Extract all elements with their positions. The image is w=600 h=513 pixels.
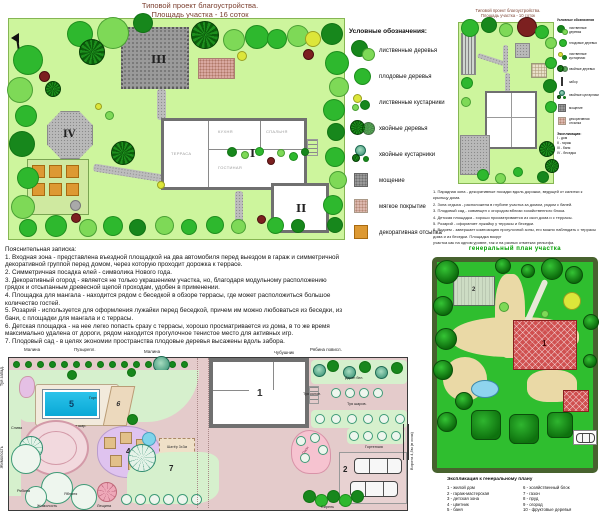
tree-icon	[97, 482, 117, 502]
legend-item-label: лиственные кустарники	[569, 53, 599, 60]
plant-label: Малина	[24, 348, 40, 353]
tree-icon	[67, 370, 77, 380]
mini-gazebo	[515, 43, 530, 58]
planting-bed: Дерен бел.	[311, 360, 407, 384]
car-icon	[576, 433, 595, 443]
legend-item-label: хвойные кустарники	[379, 152, 435, 159]
tree-icon	[565, 266, 583, 284]
tree-icon	[583, 314, 599, 330]
conifer-trees-icon	[557, 64, 569, 75]
legend-item-label: мощение	[569, 107, 583, 111]
note-item: 2. Симметричная посадка елей - символика…	[5, 269, 346, 277]
deciduous-trees-icon	[349, 39, 379, 63]
tree-icon	[327, 123, 345, 141]
tree-icon	[7, 77, 33, 103]
tree-icon	[517, 17, 537, 37]
hedge-shrub-icon	[133, 361, 140, 368]
area-number-2: 2	[343, 465, 347, 474]
shrub-icon	[163, 494, 174, 505]
plant-label: Жимолость	[37, 504, 57, 508]
tree-icon	[583, 354, 597, 368]
tree-icon	[435, 260, 459, 284]
plant-label: Туя колон.	[303, 392, 321, 396]
small-building-roof	[563, 390, 589, 412]
tree-icon	[71, 484, 97, 510]
mini-plan-title-line2: Площадь участка - 10 соток	[462, 13, 554, 18]
general-plan-explication: Экспликация к генеральному плану 1 - жил…	[447, 477, 599, 482]
tree-icon	[461, 97, 471, 107]
general-plan-canvas: 2 1	[432, 257, 598, 473]
tree-icon	[323, 99, 345, 121]
legend-item: хвойные кустарники	[557, 89, 599, 102]
legend-item: лиственные кустарники	[349, 90, 455, 116]
area-number-IV: IV	[63, 129, 75, 140]
tree-icon	[495, 258, 511, 274]
tree-icon	[327, 360, 339, 372]
building-number: 2	[472, 287, 475, 293]
tree-icon	[303, 49, 314, 60]
flower-bed	[19, 376, 35, 398]
tree-icon	[375, 366, 388, 379]
tree-icon	[391, 362, 403, 374]
tree-icon	[499, 23, 513, 37]
tree-icon	[71, 213, 81, 223]
legend-item: лиственные деревья	[557, 24, 599, 37]
tree-icon	[313, 364, 326, 377]
path	[93, 163, 165, 182]
shrub-icon	[315, 414, 325, 424]
conifer-icon	[79, 39, 105, 65]
note-item: 4. Площадка для мангала - находится рядо…	[5, 292, 346, 307]
conifer-icon	[45, 81, 61, 97]
tree-icon	[537, 171, 549, 183]
mini-legend-title: Условные обозначения	[557, 18, 599, 22]
shrub-icon	[345, 388, 355, 398]
mini-driveway	[461, 33, 476, 75]
shrub-icon	[395, 414, 405, 424]
conifer-icon	[128, 444, 156, 472]
tree-icon	[435, 328, 457, 350]
legend-item: лиственные кустарники	[557, 50, 599, 63]
outbuilding: 2	[453, 276, 495, 306]
gate-label: Ворота 4,5м (в осях)	[410, 432, 414, 470]
tree-icon	[181, 219, 197, 235]
shrub-icon	[391, 431, 401, 441]
legend-item-label: мягкое покрытие	[379, 204, 426, 211]
hydrangea-bed	[347, 428, 405, 444]
legend-item-label: декоративная отсыпка	[569, 118, 599, 125]
conifer-icon	[539, 141, 555, 157]
tree-icon	[11, 444, 41, 474]
shrub-icon	[499, 302, 509, 312]
main-plan-canvas: III IV ТЕРРАСА КУХНЯ СПАЛЬН	[8, 18, 345, 240]
tree-icon	[541, 258, 563, 280]
main-plan-title-line1: Типовой проект благоустройства.	[60, 1, 340, 10]
tree-icon	[9, 131, 35, 157]
plant-label: Лещина	[97, 504, 111, 508]
garden-bed	[66, 165, 79, 178]
shrub-icon	[95, 103, 102, 110]
shrub-icon	[347, 414, 357, 424]
shrub-icon	[331, 388, 341, 398]
tree-icon	[127, 368, 136, 377]
pond	[471, 380, 499, 398]
landscape-plan-sheet: Типовой проект благоустройства. Площадь …	[0, 0, 600, 513]
pool: 5	[43, 390, 99, 418]
tree-icon	[245, 25, 269, 49]
tree-icon	[433, 360, 453, 380]
legend-item-label: лиственные кустарники	[379, 100, 445, 107]
explication-column-right: 6 - хозяйственный блок 7 - газон 8 - пру…	[523, 485, 599, 513]
legend-item: хвойные деревья	[349, 116, 455, 142]
tree-icon	[13, 45, 43, 75]
hedge-shrub-icon	[37, 361, 44, 368]
main-plan-title: Типовой проект благоустройства. Площадь …	[60, 1, 340, 20]
explanatory-notes: Пояснительная записка: 1. Входная зона -…	[5, 246, 346, 346]
legend-item-label: хвойные деревья	[569, 68, 595, 72]
shrub-icon	[301, 148, 309, 156]
tree-icon	[45, 215, 67, 237]
stepping-stone	[104, 437, 116, 449]
tree-icon	[543, 79, 557, 93]
tree-icon	[291, 219, 305, 233]
explication-line: 5 - баня	[447, 507, 519, 513]
hedge-shrub-icon	[13, 361, 20, 368]
peony-bed: Пион	[291, 430, 331, 474]
tree-icon	[231, 219, 246, 234]
mini-legend: Условные обозначения лиственные деревья …	[557, 18, 599, 156]
tree-icon	[455, 392, 473, 410]
shrub-icon	[267, 157, 275, 165]
plant-label: Дерен бел.	[345, 377, 363, 381]
mini-plan-canvas	[458, 22, 554, 184]
house-wall	[213, 390, 249, 391]
tree-icon	[223, 29, 245, 51]
legend-item: декоративная отсыпка	[557, 115, 599, 128]
conifer-icon	[111, 141, 135, 165]
area-number-III: III	[151, 53, 166, 66]
house-wall	[273, 362, 274, 390]
shrub-icon	[277, 149, 285, 157]
legend-item-label: плодовые деревья	[379, 74, 431, 81]
shrub-icon	[296, 436, 306, 446]
north-arrow-flag	[11, 33, 19, 43]
shrub-icon	[121, 494, 132, 505]
path	[157, 89, 166, 120]
tree-icon	[155, 216, 174, 235]
paved-area: III	[121, 27, 189, 89]
tree-icon	[513, 167, 523, 177]
hedge-shrub-icon	[351, 490, 364, 503]
general-plan-title: генеральный план участка	[430, 246, 600, 252]
hedge-shrub-icon	[85, 361, 92, 368]
tree-icon	[329, 77, 349, 97]
legend-title: Условные обозначения:	[349, 28, 455, 35]
plant-label: Горт.	[89, 396, 97, 400]
shrub-icon	[289, 152, 298, 161]
tree-icon	[39, 71, 50, 82]
tree-icon	[329, 171, 347, 189]
tree-icon	[257, 215, 266, 224]
stepping-stone	[110, 455, 122, 467]
explication-title: Экспликация к генеральному плану	[447, 477, 599, 482]
shrub-icon	[227, 147, 237, 157]
hedge-icon	[547, 412, 573, 438]
soft-surface-icon	[349, 195, 379, 219]
house-wall	[208, 121, 209, 187]
legend-item: лиственные деревья	[349, 38, 455, 64]
shrub-icon	[373, 388, 383, 398]
garden-bed	[49, 165, 62, 178]
plant-label: Сирень	[321, 505, 334, 509]
note-item: 7. Плодовый сад - в целях экономии прост…	[5, 338, 346, 346]
note-item: 1. Входная зона - представлена въездной …	[5, 254, 346, 269]
tree-icon	[103, 216, 123, 236]
area-number-7: 7	[169, 464, 173, 473]
kitchen-garden	[27, 159, 89, 215]
plant-label: Туя запад.	[0, 366, 4, 386]
fence-icon	[557, 77, 569, 88]
notes-title: Пояснительная записка:	[5, 246, 346, 254]
tree-icon	[127, 414, 138, 425]
main-house-roof: 1	[513, 320, 577, 370]
tree-icon	[267, 217, 284, 234]
plant-label: Пузырепл.	[74, 348, 96, 353]
tree-icon	[11, 195, 35, 219]
hedge-shrub-icon	[97, 361, 104, 368]
tree-icon	[327, 217, 343, 233]
hedge-shrub-icon	[25, 361, 32, 368]
note-item: 6. Детская площадка - на нее легко попас…	[5, 323, 346, 338]
room-label-terrace: ТЕРРАСА	[171, 151, 191, 156]
note-item: 5. Розарий - используется для оформления…	[5, 307, 346, 322]
hedge-shrub-icon	[49, 361, 56, 368]
legend-item: плодовые деревья	[349, 64, 455, 90]
tree-icon	[133, 13, 153, 33]
tree-icon	[545, 37, 557, 49]
conifer-shrubs-icon	[349, 143, 379, 167]
paving-icon	[349, 169, 379, 193]
legend-item: мощение	[557, 102, 599, 115]
hedge-shrub-icon	[121, 361, 128, 368]
hedge-icon	[471, 410, 501, 440]
tree-icon	[267, 29, 287, 49]
tree-icon	[19, 219, 37, 237]
soft-surface-patch	[198, 58, 235, 79]
mini-plan-notes: 1. Парадная зона - декоративные посадки …	[433, 189, 598, 247]
legend-item-label: хвойные кустарники	[569, 94, 599, 98]
deciduous-shrubs-icon	[557, 51, 569, 62]
plant-label: Чубушник	[274, 351, 294, 356]
tree-icon	[129, 219, 146, 236]
legend-item: хвойные деревья	[557, 63, 599, 76]
legend-item-label: плодовые деревья	[569, 42, 597, 46]
fruit-trees-icon	[557, 38, 569, 49]
tree-icon	[481, 17, 497, 33]
legend-item-label: мощение	[379, 178, 405, 185]
house-wall	[487, 117, 535, 118]
tree-icon	[461, 19, 479, 37]
plant-label: Рябина	[17, 489, 30, 493]
area-number-6: 6	[116, 401, 121, 408]
deciduous-trees-icon	[557, 25, 569, 36]
plant-label: Гортензия	[365, 445, 383, 449]
house: 1	[209, 358, 309, 428]
tree-icon	[563, 292, 581, 310]
tree-icon	[305, 31, 321, 47]
room-label-living: ГОСТИНАЯ	[218, 165, 242, 170]
tree-icon	[15, 105, 37, 127]
legend-item-label: лиственные деревья	[379, 48, 437, 55]
tree-icon	[325, 147, 345, 167]
house-wall	[260, 121, 261, 149]
shrub-icon	[331, 414, 341, 424]
shrub-icon	[237, 51, 247, 61]
tree-icon	[323, 195, 343, 215]
plant-label: Яблоня	[64, 492, 77, 496]
shrub-icon	[379, 414, 389, 424]
hedge-shrub-icon	[145, 361, 152, 368]
shrub-icon	[377, 431, 387, 441]
tree-icon	[359, 361, 371, 373]
legend-item: плодовые деревья	[557, 37, 599, 50]
building-number: 1	[542, 339, 546, 348]
gate	[403, 424, 409, 460]
planting-bed	[311, 410, 407, 428]
plant-label: Малина	[144, 350, 160, 355]
hedge-shrub-icon	[181, 361, 188, 368]
tree-icon	[325, 51, 349, 75]
hedge-shrub-icon	[73, 361, 80, 368]
shrub-icon	[318, 445, 328, 455]
shrub-icon	[241, 151, 249, 159]
note-line: 6. Водоем - завершает композицию прогуло…	[433, 227, 598, 240]
shrub-icon	[363, 431, 373, 441]
room-label-kitchen: КУХНЯ	[218, 129, 233, 134]
tree-icon	[437, 412, 457, 432]
shrub-icon	[177, 494, 188, 505]
house-wall	[511, 93, 512, 147]
plant-label: Пион	[302, 446, 310, 455]
tree-icon	[545, 101, 557, 113]
plant-label: Жимолость	[0, 446, 4, 468]
tree-icon	[461, 77, 473, 89]
tree-icon	[321, 23, 343, 45]
plant-label: Рябина повисл.	[310, 348, 342, 353]
shrub-icon	[359, 388, 369, 398]
note-line: 1. Парадная зона - декоративные посадки …	[433, 189, 598, 202]
tree-icon	[17, 167, 39, 189]
conifer-shrubs-icon	[557, 90, 569, 101]
shrub-icon	[157, 181, 165, 189]
conifer-trees-icon	[349, 117, 379, 141]
path	[503, 45, 508, 73]
garden-bed	[49, 183, 62, 196]
stepping-stone	[120, 432, 132, 444]
shrub-icon	[363, 414, 373, 424]
shrub-icon	[349, 431, 359, 441]
shrub-icon	[149, 494, 160, 505]
note-item: 3. Декоративный огород - является не тол…	[5, 277, 346, 292]
legend-item: хвойные кустарники	[349, 142, 455, 168]
legend-item: забор	[557, 76, 599, 89]
tree-icon	[433, 296, 453, 316]
mini-house	[485, 91, 537, 149]
tree-icon	[545, 57, 557, 69]
tent-label: Шатёр 3х3м	[167, 445, 187, 449]
hedge-icon	[509, 414, 539, 444]
tree-icon	[79, 219, 97, 237]
area-number-II: II	[296, 202, 306, 215]
conifer-icon	[191, 21, 219, 49]
shrub-icon	[135, 494, 146, 505]
explication-column-left: 1 - жилой дом 2 - гараж-мастерская 3 - д…	[447, 485, 519, 513]
shrub-icon	[105, 111, 114, 120]
legend-item-label: хвойные деревья	[379, 126, 428, 133]
car-icon	[354, 458, 402, 474]
gazebo: IV	[47, 111, 93, 159]
plant-label: Туя шаров.	[347, 402, 367, 406]
tree-icon	[206, 216, 224, 234]
conifer-icon	[545, 159, 559, 173]
paving-icon	[557, 103, 569, 114]
decorative-mulch-icon	[557, 116, 569, 127]
tree-icon	[521, 264, 535, 278]
tree-icon	[477, 169, 489, 181]
tree-icon	[495, 173, 506, 184]
hedge-shrub-icon	[169, 361, 176, 368]
car-stall	[573, 430, 597, 445]
detail-plan-canvas: 3 5 6 Горт. Туя шар. Слива 4	[8, 357, 408, 511]
decorative-mulch-icon	[349, 221, 379, 245]
garden-barrel	[70, 200, 81, 211]
room-label-bedroom: СПАЛЬНЯ	[266, 129, 288, 134]
legend-item-label: лиственные деревья	[569, 27, 599, 34]
hedge-shrub-icon	[61, 361, 68, 368]
fruit-trees-icon	[349, 65, 379, 89]
deciduous-shrubs-icon	[349, 91, 379, 115]
shrub-icon	[541, 310, 549, 318]
side-path	[197, 358, 209, 508]
shrub-icon	[310, 433, 320, 443]
explication-line: 10 - фруктовые деревья	[523, 507, 599, 513]
hedge-shrub-icon	[109, 361, 116, 368]
area-number-1: 1	[257, 388, 263, 399]
mini-explication-line: IV - беседка	[557, 151, 599, 156]
shrub-icon	[255, 147, 264, 156]
plant-label: Слива	[11, 426, 22, 430]
legend-item-label: забор	[569, 81, 578, 85]
garden-bed	[66, 183, 79, 196]
mini-plan-title: Типовой проект благоустройства. Площадь …	[462, 8, 554, 19]
area-number-5: 5	[69, 399, 74, 409]
path	[477, 53, 505, 66]
